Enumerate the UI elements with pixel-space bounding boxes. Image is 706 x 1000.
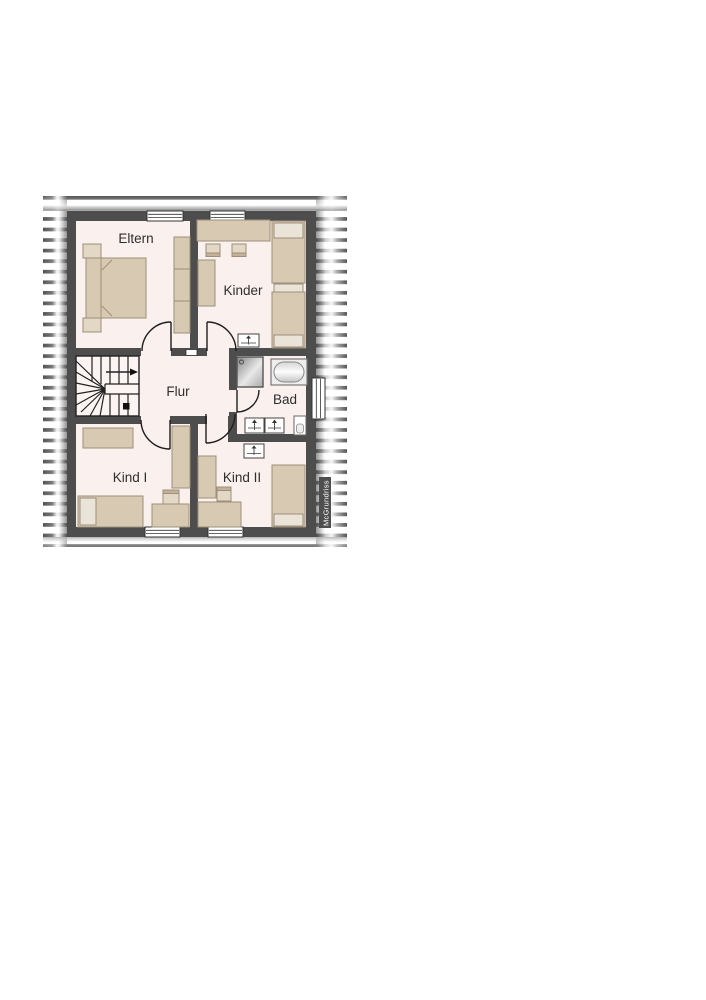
desk bbox=[152, 504, 189, 527]
double-bed bbox=[101, 258, 146, 318]
radiator-kind2 bbox=[244, 444, 264, 458]
label-flur: Flur bbox=[166, 384, 190, 399]
watermark: McGrundriss bbox=[319, 477, 331, 528]
shower bbox=[237, 357, 263, 387]
tall-wardrobe bbox=[172, 426, 190, 488]
chair-backrest bbox=[232, 253, 246, 257]
wall-kind1-kind2 bbox=[190, 416, 198, 527]
wall-flur-bottom-stub bbox=[170, 416, 207, 424]
wardrobe bbox=[174, 237, 190, 333]
window-bottom-1 bbox=[145, 527, 180, 537]
window-bad bbox=[312, 378, 325, 419]
washbasin bbox=[265, 418, 284, 433]
stairs bbox=[76, 356, 139, 416]
wall-exterior-top bbox=[67, 211, 316, 221]
floorplan-page: Eltern Kinder Flur Bad Kind I Kind II Mc… bbox=[0, 0, 706, 1000]
bed-headboard bbox=[86, 258, 101, 318]
wall-flur-bottom-left bbox=[76, 416, 141, 424]
window-bottom-2 bbox=[208, 527, 243, 537]
bedside-shelf bbox=[274, 284, 303, 292]
stair-post-marker bbox=[123, 403, 130, 410]
wall-flur-top-left bbox=[76, 348, 141, 356]
label-bad: Bad bbox=[273, 392, 297, 407]
wall-flur-bad-upper bbox=[229, 348, 237, 390]
desk bbox=[198, 502, 241, 527]
floorplan-canvas: Eltern Kinder Flur Bad Kind I Kind II Mc… bbox=[0, 0, 706, 1000]
nightstand bbox=[83, 244, 101, 258]
watermark-text: McGrundriss bbox=[322, 480, 331, 526]
chair-backrest bbox=[206, 253, 220, 257]
wardrobe bbox=[198, 260, 215, 306]
bed-pillow bbox=[80, 498, 96, 525]
toilet bbox=[294, 416, 306, 435]
bathtub bbox=[271, 359, 307, 385]
radiator-kinder bbox=[238, 334, 259, 347]
chair-backrest bbox=[163, 490, 179, 494]
wardrobe bbox=[83, 428, 133, 448]
bed-pillow bbox=[274, 514, 303, 526]
nightstand bbox=[83, 318, 101, 332]
label-kinder: Kinder bbox=[223, 283, 263, 298]
wall-exterior-left bbox=[67, 211, 76, 537]
label-eltern: Eltern bbox=[118, 231, 153, 246]
desk bbox=[197, 220, 270, 241]
label-kind1: Kind I bbox=[113, 470, 148, 485]
wall-niche-marker bbox=[186, 350, 197, 356]
wall-exterior-bottom bbox=[67, 527, 316, 537]
bed-pillow bbox=[274, 335, 303, 347]
window-top-1 bbox=[147, 211, 183, 221]
wall-kinder-bad bbox=[236, 348, 306, 356]
chair-backrest bbox=[217, 487, 231, 491]
bed-pillow bbox=[274, 223, 303, 238]
label-kind2: Kind II bbox=[223, 470, 261, 485]
wardrobe bbox=[198, 456, 216, 498]
washbasin bbox=[245, 418, 264, 433]
